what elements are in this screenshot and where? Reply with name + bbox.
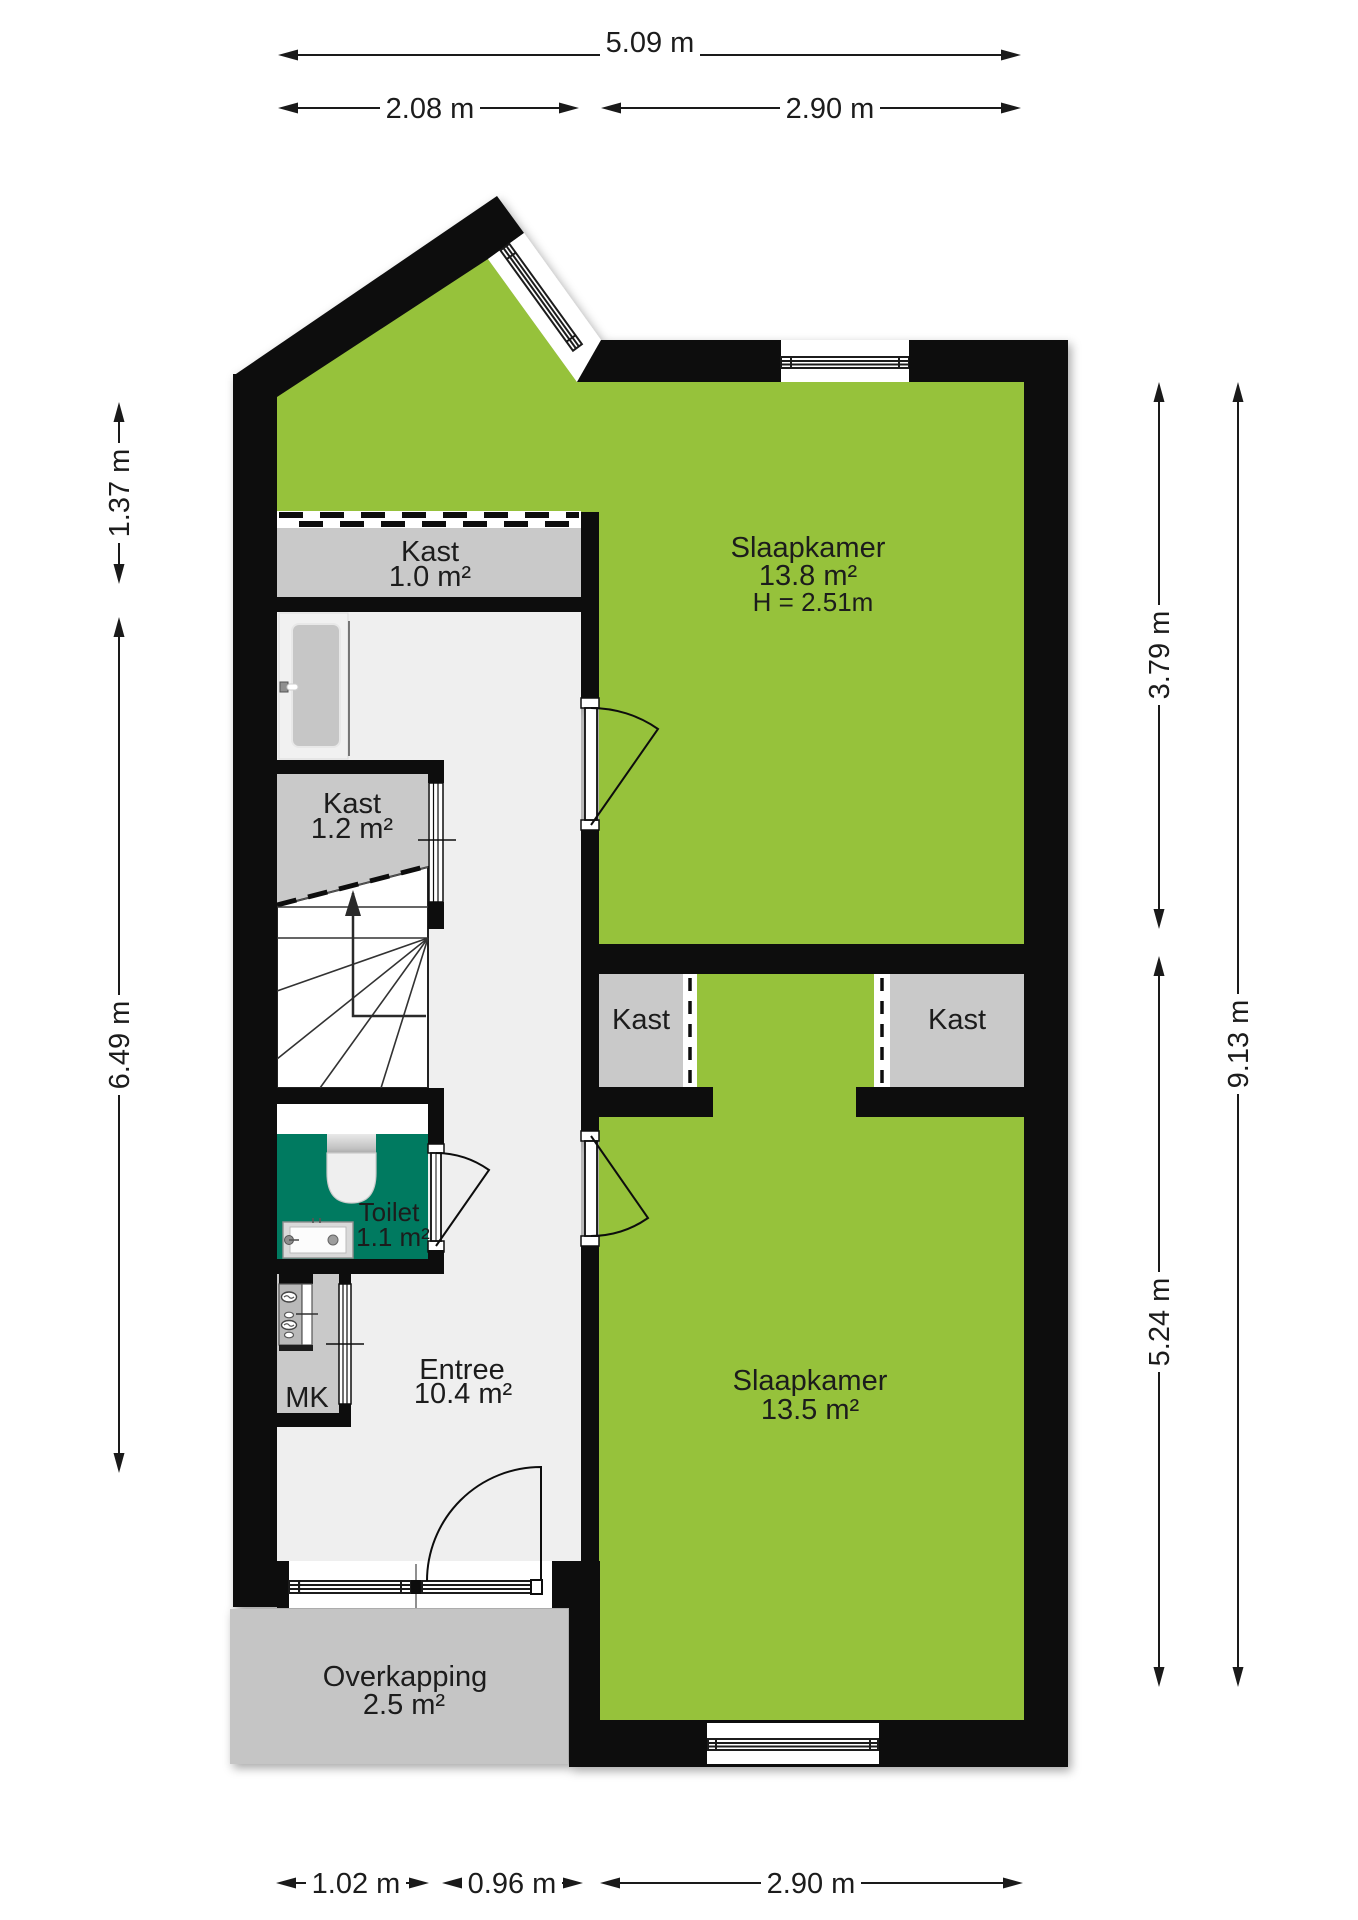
svg-text:10.4 m²: 10.4 m² [414,1378,513,1410]
svg-text:1.2 m²: 1.2 m² [311,813,394,845]
svg-text:0.96 m: 0.96 m [468,1868,557,1900]
svg-text:5.09 m: 5.09 m [606,27,695,59]
svg-text:9.13 m: 9.13 m [1223,1000,1255,1089]
svg-text:H = 2.51m: H = 2.51m [753,587,874,617]
svg-text:13.5 m²: 13.5 m² [761,1394,860,1426]
svg-text:2.90 m: 2.90 m [767,1868,856,1900]
svg-text:MK: MK [285,1382,329,1414]
svg-text:5.24 m: 5.24 m [1144,1278,1176,1367]
svg-text:Slaapkamer: Slaapkamer [733,1365,888,1397]
svg-text:1.1 m²: 1.1 m² [356,1222,430,1252]
svg-text:1.37 m: 1.37 m [104,449,136,538]
svg-text:2.08 m: 2.08 m [386,93,475,125]
svg-text:1.0 m²: 1.0 m² [389,561,472,593]
svg-text:2.90 m: 2.90 m [786,93,875,125]
svg-text:3.79 m: 3.79 m [1144,611,1176,700]
svg-text:1.02 m: 1.02 m [312,1868,401,1900]
svg-text:6.49 m: 6.49 m [104,1001,136,1090]
svg-text:Kast: Kast [928,1004,986,1036]
svg-text:Kast: Kast [612,1004,670,1036]
svg-text:2.5 m²: 2.5 m² [363,1689,446,1721]
